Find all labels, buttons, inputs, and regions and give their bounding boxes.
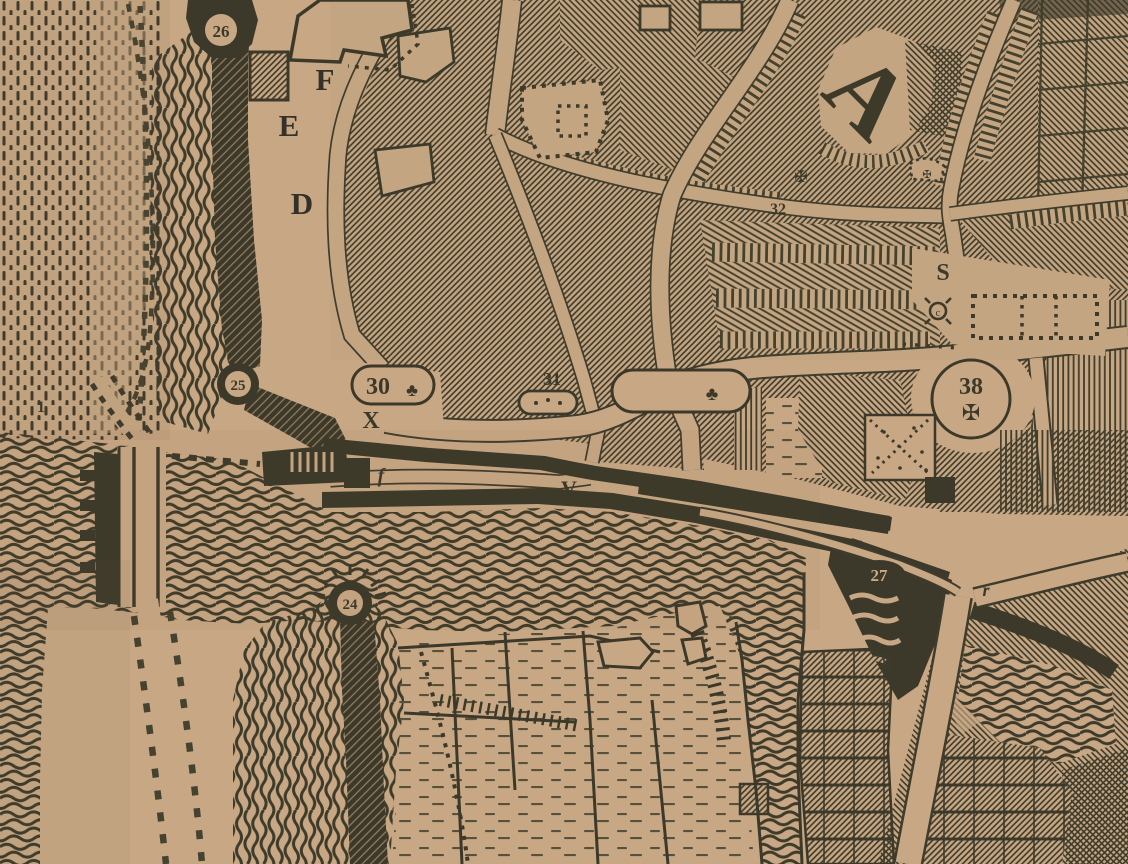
svg-text:♣: ♣: [706, 384, 718, 405]
svg-text:31: 31: [543, 369, 561, 389]
svg-text:E: E: [279, 108, 300, 143]
svg-text:♣: ♣: [406, 380, 418, 400]
svg-text:25: 25: [231, 378, 246, 394]
svg-text:26: 26: [213, 22, 230, 41]
svg-text:30: 30: [366, 374, 390, 400]
svg-text:r: r: [982, 580, 990, 600]
svg-text:27: 27: [871, 566, 889, 585]
svg-text:✠: ✠: [962, 400, 980, 425]
svg-text:38: 38: [959, 374, 983, 400]
svg-text:D: D: [291, 186, 313, 221]
